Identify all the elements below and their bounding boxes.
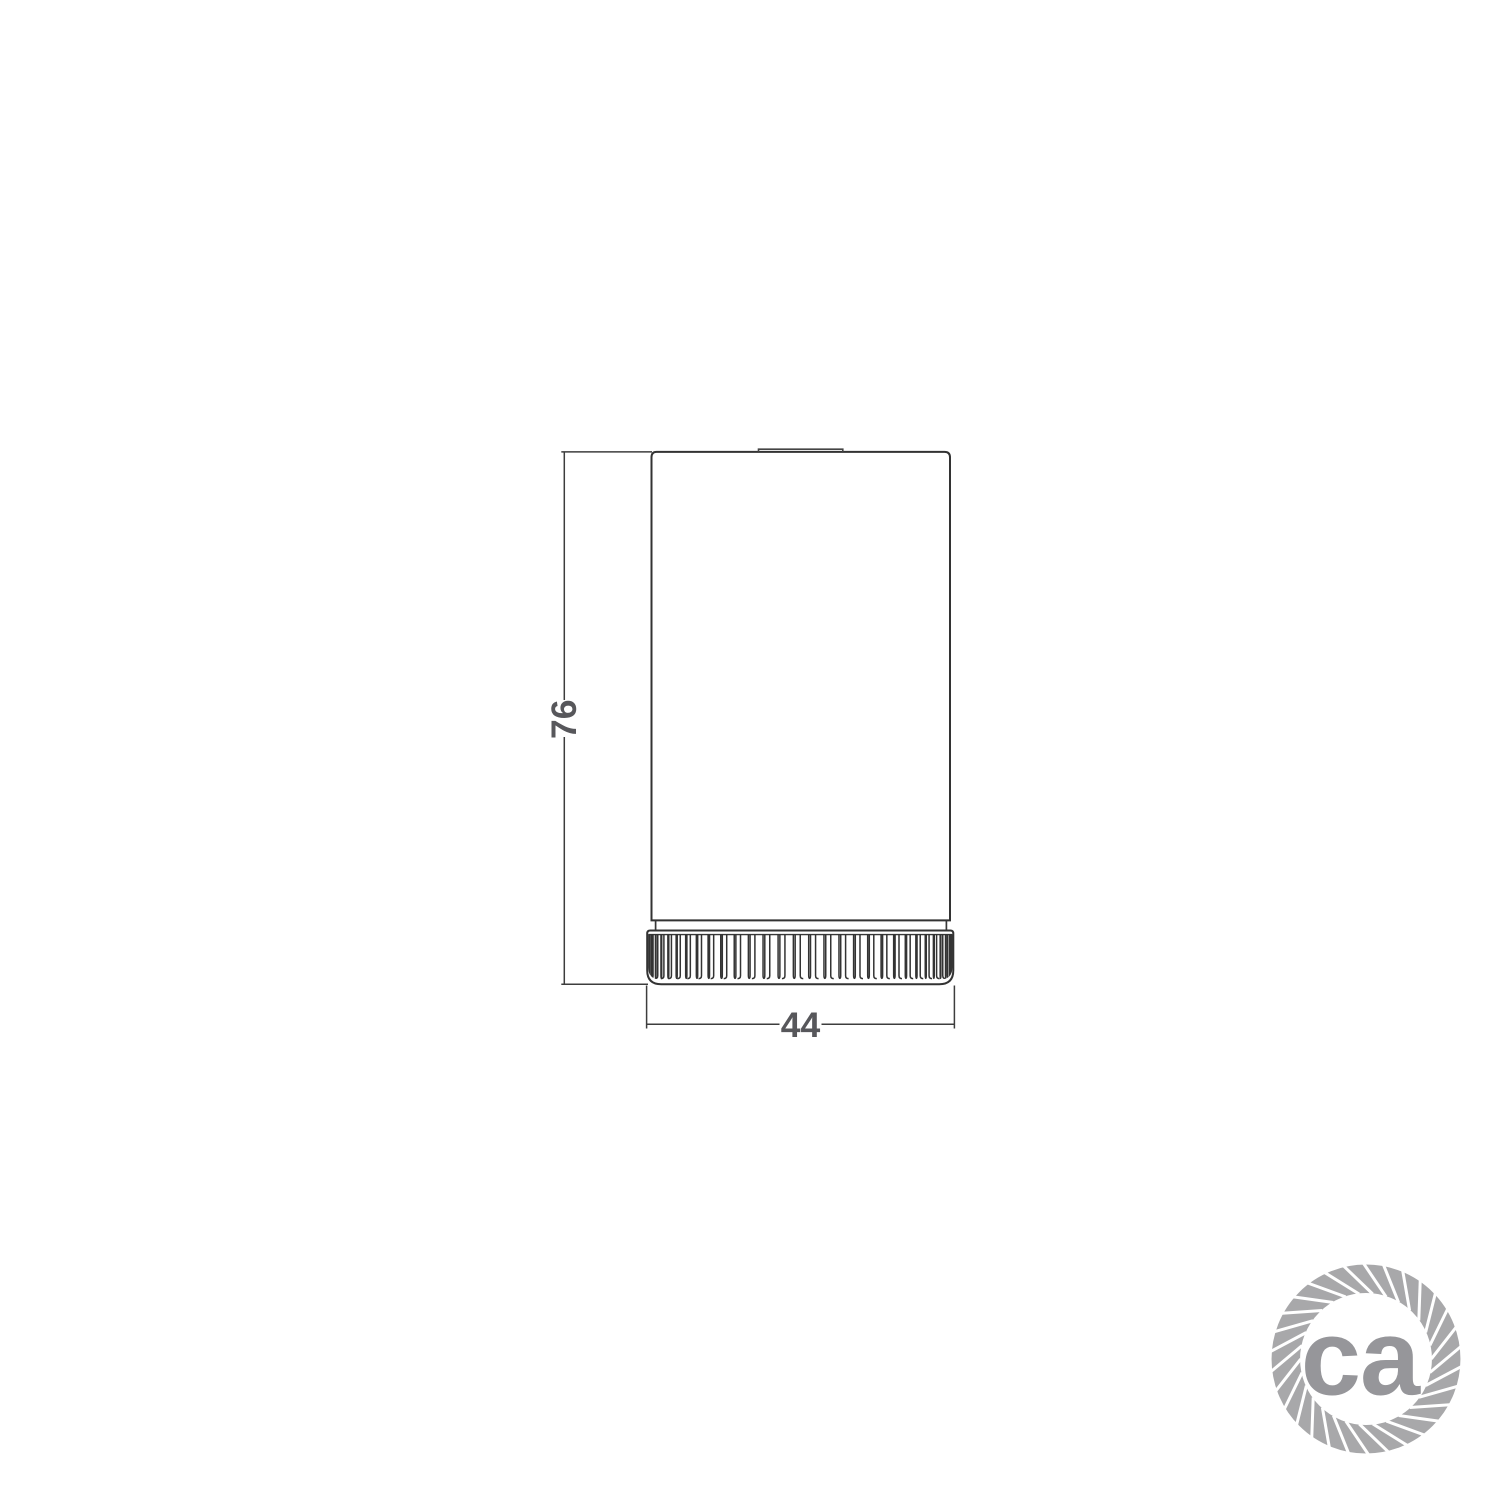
svg-text:44: 44 (781, 1005, 821, 1045)
svg-text:76: 76 (544, 699, 584, 739)
svg-text:ca: ca (1301, 1297, 1421, 1418)
